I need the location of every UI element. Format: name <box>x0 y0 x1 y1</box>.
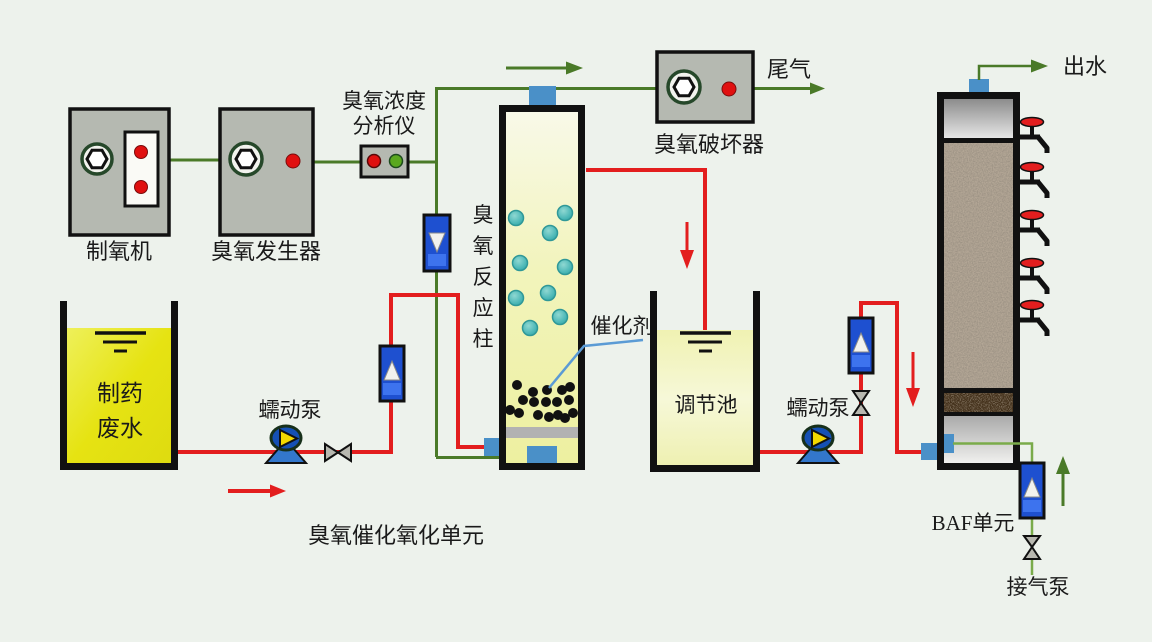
valve-icon <box>1024 547 1040 559</box>
column-label-char: 柱 <box>473 327 494 351</box>
column-label-char: 应 <box>473 296 494 320</box>
peristaltic-pump-2 <box>798 426 838 463</box>
oxygen-generator <box>70 109 169 235</box>
analyzer-label-line2: 分析仪 <box>353 114 416 138</box>
flowmeter-window <box>428 254 446 266</box>
hex-knob-icon <box>87 150 107 167</box>
wastewater-label-line2: 废水 <box>97 416 143 441</box>
hex-knob-icon <box>236 150 256 167</box>
red-indicator-icon <box>722 82 736 96</box>
baf-top-port <box>969 79 989 94</box>
analyzer-label-line1: 臭氧浓度 <box>342 89 426 113</box>
baf-separator <box>944 412 1013 416</box>
pump2-label: 蠕动泵 <box>787 396 850 420</box>
baf-support-texture <box>944 393 1013 412</box>
peristaltic-pump-1 <box>266 426 306 463</box>
hex-knob-icon <box>674 78 694 95</box>
catalyst-label: 催化剂 <box>591 314 654 338</box>
ozone-destructor-label: 臭氧破坏器 <box>654 132 764 157</box>
sampling-tap-icon <box>1016 163 1047 199</box>
wastewater-label-line1: 制药 <box>97 381 143 406</box>
regulating-tank-label: 调节池 <box>675 393 738 417</box>
support-plate <box>506 427 578 438</box>
column-label-char: 氧 <box>473 234 494 258</box>
pipe-effluent <box>979 66 1033 80</box>
flowmeter-window <box>1023 500 1041 512</box>
tail-gas-arrow-icon <box>810 83 825 95</box>
bubble-icon <box>543 226 558 241</box>
valve-1 <box>325 444 351 461</box>
baf-column <box>921 79 1017 467</box>
valve-icon <box>338 444 351 461</box>
bubble-icon <box>541 286 556 301</box>
flowmeter-window <box>852 355 870 367</box>
liquid-flow-arrow2-icon <box>680 250 694 269</box>
baf-bottom-chamber <box>944 416 1013 463</box>
ozone-generator <box>220 109 313 235</box>
baf-separator <box>944 138 1013 143</box>
ozone-flowmeter <box>424 215 450 271</box>
liquid-flow-arrow1-icon <box>270 485 286 498</box>
ozone-generator-label: 臭氧发生器 <box>211 239 321 264</box>
red-indicator-icon <box>286 154 300 168</box>
oxygen-generator-label: 制氧机 <box>86 239 152 264</box>
liquid-flowmeter-1 <box>380 346 404 401</box>
sampling-tap-icon <box>1016 118 1047 154</box>
effluent-label: 出水 <box>1063 54 1107 79</box>
effluent-arrow-icon <box>1031 60 1048 73</box>
air-flow-arrow-icon <box>1056 456 1070 474</box>
reaction-column-label: 臭 氧 反 应 柱 <box>473 203 494 351</box>
liquid-flow-arrow3-icon <box>906 388 920 407</box>
baf-separator <box>944 388 1013 393</box>
baf-inlet-port <box>921 443 938 460</box>
red-indicator-icon <box>368 155 381 168</box>
indicator-panel <box>125 132 158 206</box>
baf-headspace <box>944 99 1013 138</box>
tail-gas-label: 尾气 <box>767 57 811 82</box>
valve-icon <box>853 403 869 415</box>
column-label-char: 臭 <box>473 203 494 227</box>
air-flowmeter <box>1020 463 1044 518</box>
gas-diffuser <box>527 446 557 465</box>
unit-title: 臭氧催化氧化单元 <box>308 523 484 548</box>
ozone-reaction-column <box>484 86 582 467</box>
liquid-flowmeter-2 <box>849 318 873 373</box>
bubble-icon <box>513 256 528 271</box>
valve-icon <box>325 444 338 461</box>
pump1-label: 蠕动泵 <box>259 398 322 422</box>
air-pump-label: 接气泵 <box>1007 575 1070 599</box>
baf-unit-label: BAF单元 <box>932 511 1015 535</box>
bubble-icon <box>509 211 524 226</box>
bubble-icon <box>558 260 573 275</box>
sampling-tap-icon <box>1016 259 1047 295</box>
flowmeter-window <box>383 383 401 395</box>
process-flow-diagram: 制氧机 臭氧发生器 臭氧浓度 分析仪 制药 废水 蠕动泵 <box>0 0 1152 642</box>
column-label-char: 反 <box>473 265 494 289</box>
ozone-destructor <box>657 52 753 122</box>
sampling-tap-icon <box>1016 211 1047 247</box>
baf-media-texture <box>944 143 1013 388</box>
ozone-analyzer <box>361 146 408 177</box>
sampling-tap-icon <box>1016 301 1047 337</box>
gas-flow-arrow-icon <box>566 62 583 75</box>
baf-sampling-taps <box>1016 118 1047 337</box>
valve-2 <box>853 391 869 415</box>
bubble-icon <box>553 310 568 325</box>
bubble-icon <box>509 291 524 306</box>
bubble-icon <box>523 321 538 336</box>
diagram-canvas: 制氧机 臭氧发生器 臭氧浓度 分析仪 制药 废水 蠕动泵 <box>0 0 1152 642</box>
red-indicator-icon <box>135 146 148 159</box>
bubble-icon <box>558 206 573 221</box>
green-indicator-icon <box>390 155 403 168</box>
valve-3 <box>1024 536 1040 559</box>
effluent-line <box>979 66 1033 80</box>
red-indicator-icon <box>135 181 148 194</box>
column-top-port <box>529 86 556 108</box>
